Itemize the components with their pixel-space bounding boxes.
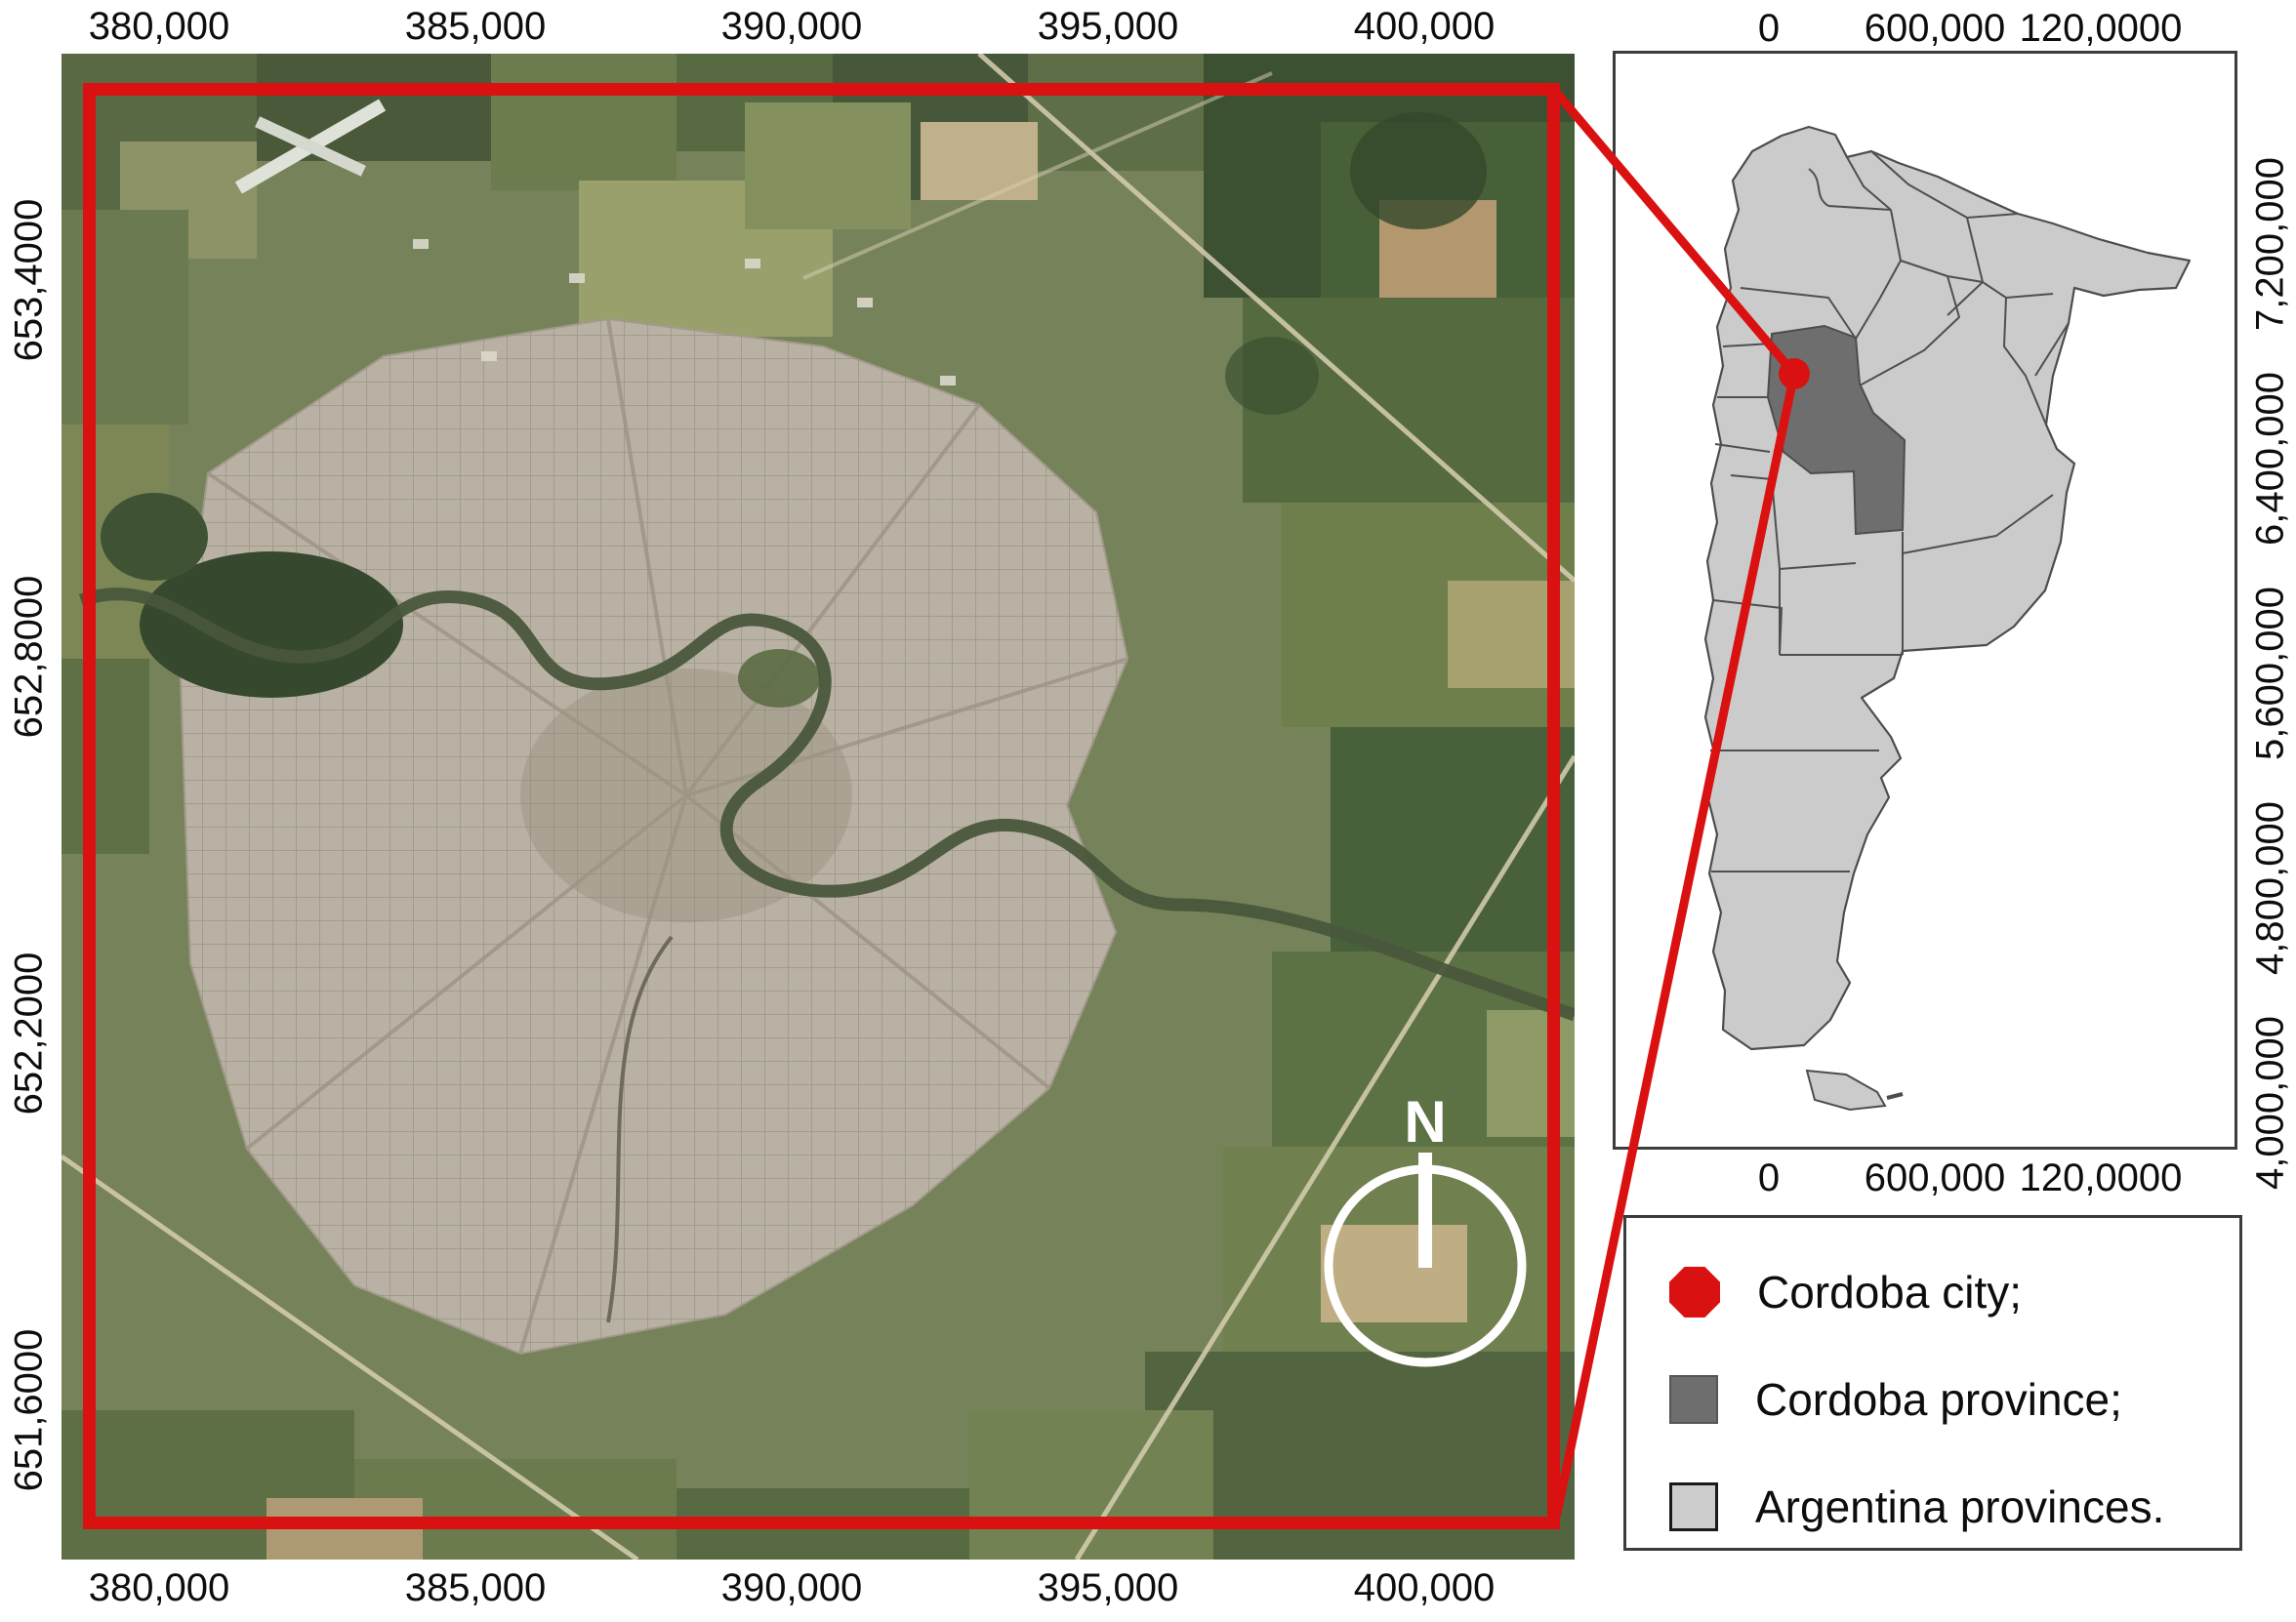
x-tick-bottom-2: 385,000 <box>405 1565 547 1610</box>
y-tick-2: 652,8000 <box>8 576 52 739</box>
legend-label-cordoba-city: Cordoba city; <box>1757 1266 2022 1318</box>
inset-y-tick-2: 6,400,000 <box>2249 372 2293 546</box>
x-tick-bottom-5: 400,000 <box>1354 1565 1496 1610</box>
inset-y-tick-4: 4,800,000 <box>2249 801 2293 975</box>
legend-label-argentina-provinces: Argentina provinces. <box>1755 1480 2164 1533</box>
y-tick-1: 653,4000 <box>8 199 52 362</box>
legend: Cordoba city; Cordoba province; Argentin… <box>1623 1215 2242 1551</box>
red-octagon-marker-icon <box>1669 1267 1720 1318</box>
inset-x-tick-bottom-2: 600,000 <box>1865 1156 2006 1200</box>
inset-x-tick-top-2: 600,000 <box>1865 6 2006 51</box>
inset-x-tick-top-1: 0 <box>1758 6 1780 51</box>
inset-x-tick-bottom-3: 120,0000 <box>2020 1156 2183 1200</box>
x-tick-top-5: 400,000 <box>1354 4 1496 49</box>
inset-y-tick-5: 4,000,000 <box>2249 1016 2293 1190</box>
legend-item-argentina-provinces: Argentina provinces. <box>1669 1477 2164 1537</box>
x-tick-top-4: 395,000 <box>1038 4 1179 49</box>
argentina-outline <box>1705 127 2190 1049</box>
x-tick-bottom-1: 380,000 <box>89 1565 230 1610</box>
x-tick-bottom-4: 395,000 <box>1038 1565 1179 1610</box>
inset-x-tick-top-3: 120,0000 <box>2020 6 2183 51</box>
inset-x-tick-bottom-1: 0 <box>1758 1156 1780 1200</box>
legend-item-cordoba-province: Cordoba province; <box>1669 1369 2122 1430</box>
legend-item-cordoba-city: Cordoba city; <box>1669 1262 2022 1322</box>
tierra-del-fuego <box>1807 1071 1885 1110</box>
light-square-swatch-icon <box>1669 1482 1718 1531</box>
argentina-map <box>1616 54 2234 1147</box>
legend-label-cordoba-province: Cordoba province; <box>1755 1373 2122 1426</box>
inset-y-tick-1: 7,200,000 <box>2249 157 2293 331</box>
inset-y-tick-3: 5,600,000 <box>2249 587 2293 760</box>
y-tick-4: 651,6000 <box>8 1329 52 1492</box>
extent-rectangle <box>83 83 1560 1529</box>
y-tick-3: 652,2000 <box>8 953 52 1115</box>
x-tick-top-2: 385,000 <box>405 4 547 49</box>
dark-square-swatch-icon <box>1669 1375 1718 1424</box>
x-tick-top-3: 390,000 <box>721 4 863 49</box>
inset-map <box>1613 51 2237 1150</box>
x-tick-top-1: 380,000 <box>89 4 230 49</box>
isla-de-los-estados <box>1887 1094 1903 1098</box>
figure-page: N 380,000 385,000 390,000 395,000 400,00… <box>0 0 2296 1622</box>
x-tick-bottom-3: 390,000 <box>721 1565 863 1610</box>
